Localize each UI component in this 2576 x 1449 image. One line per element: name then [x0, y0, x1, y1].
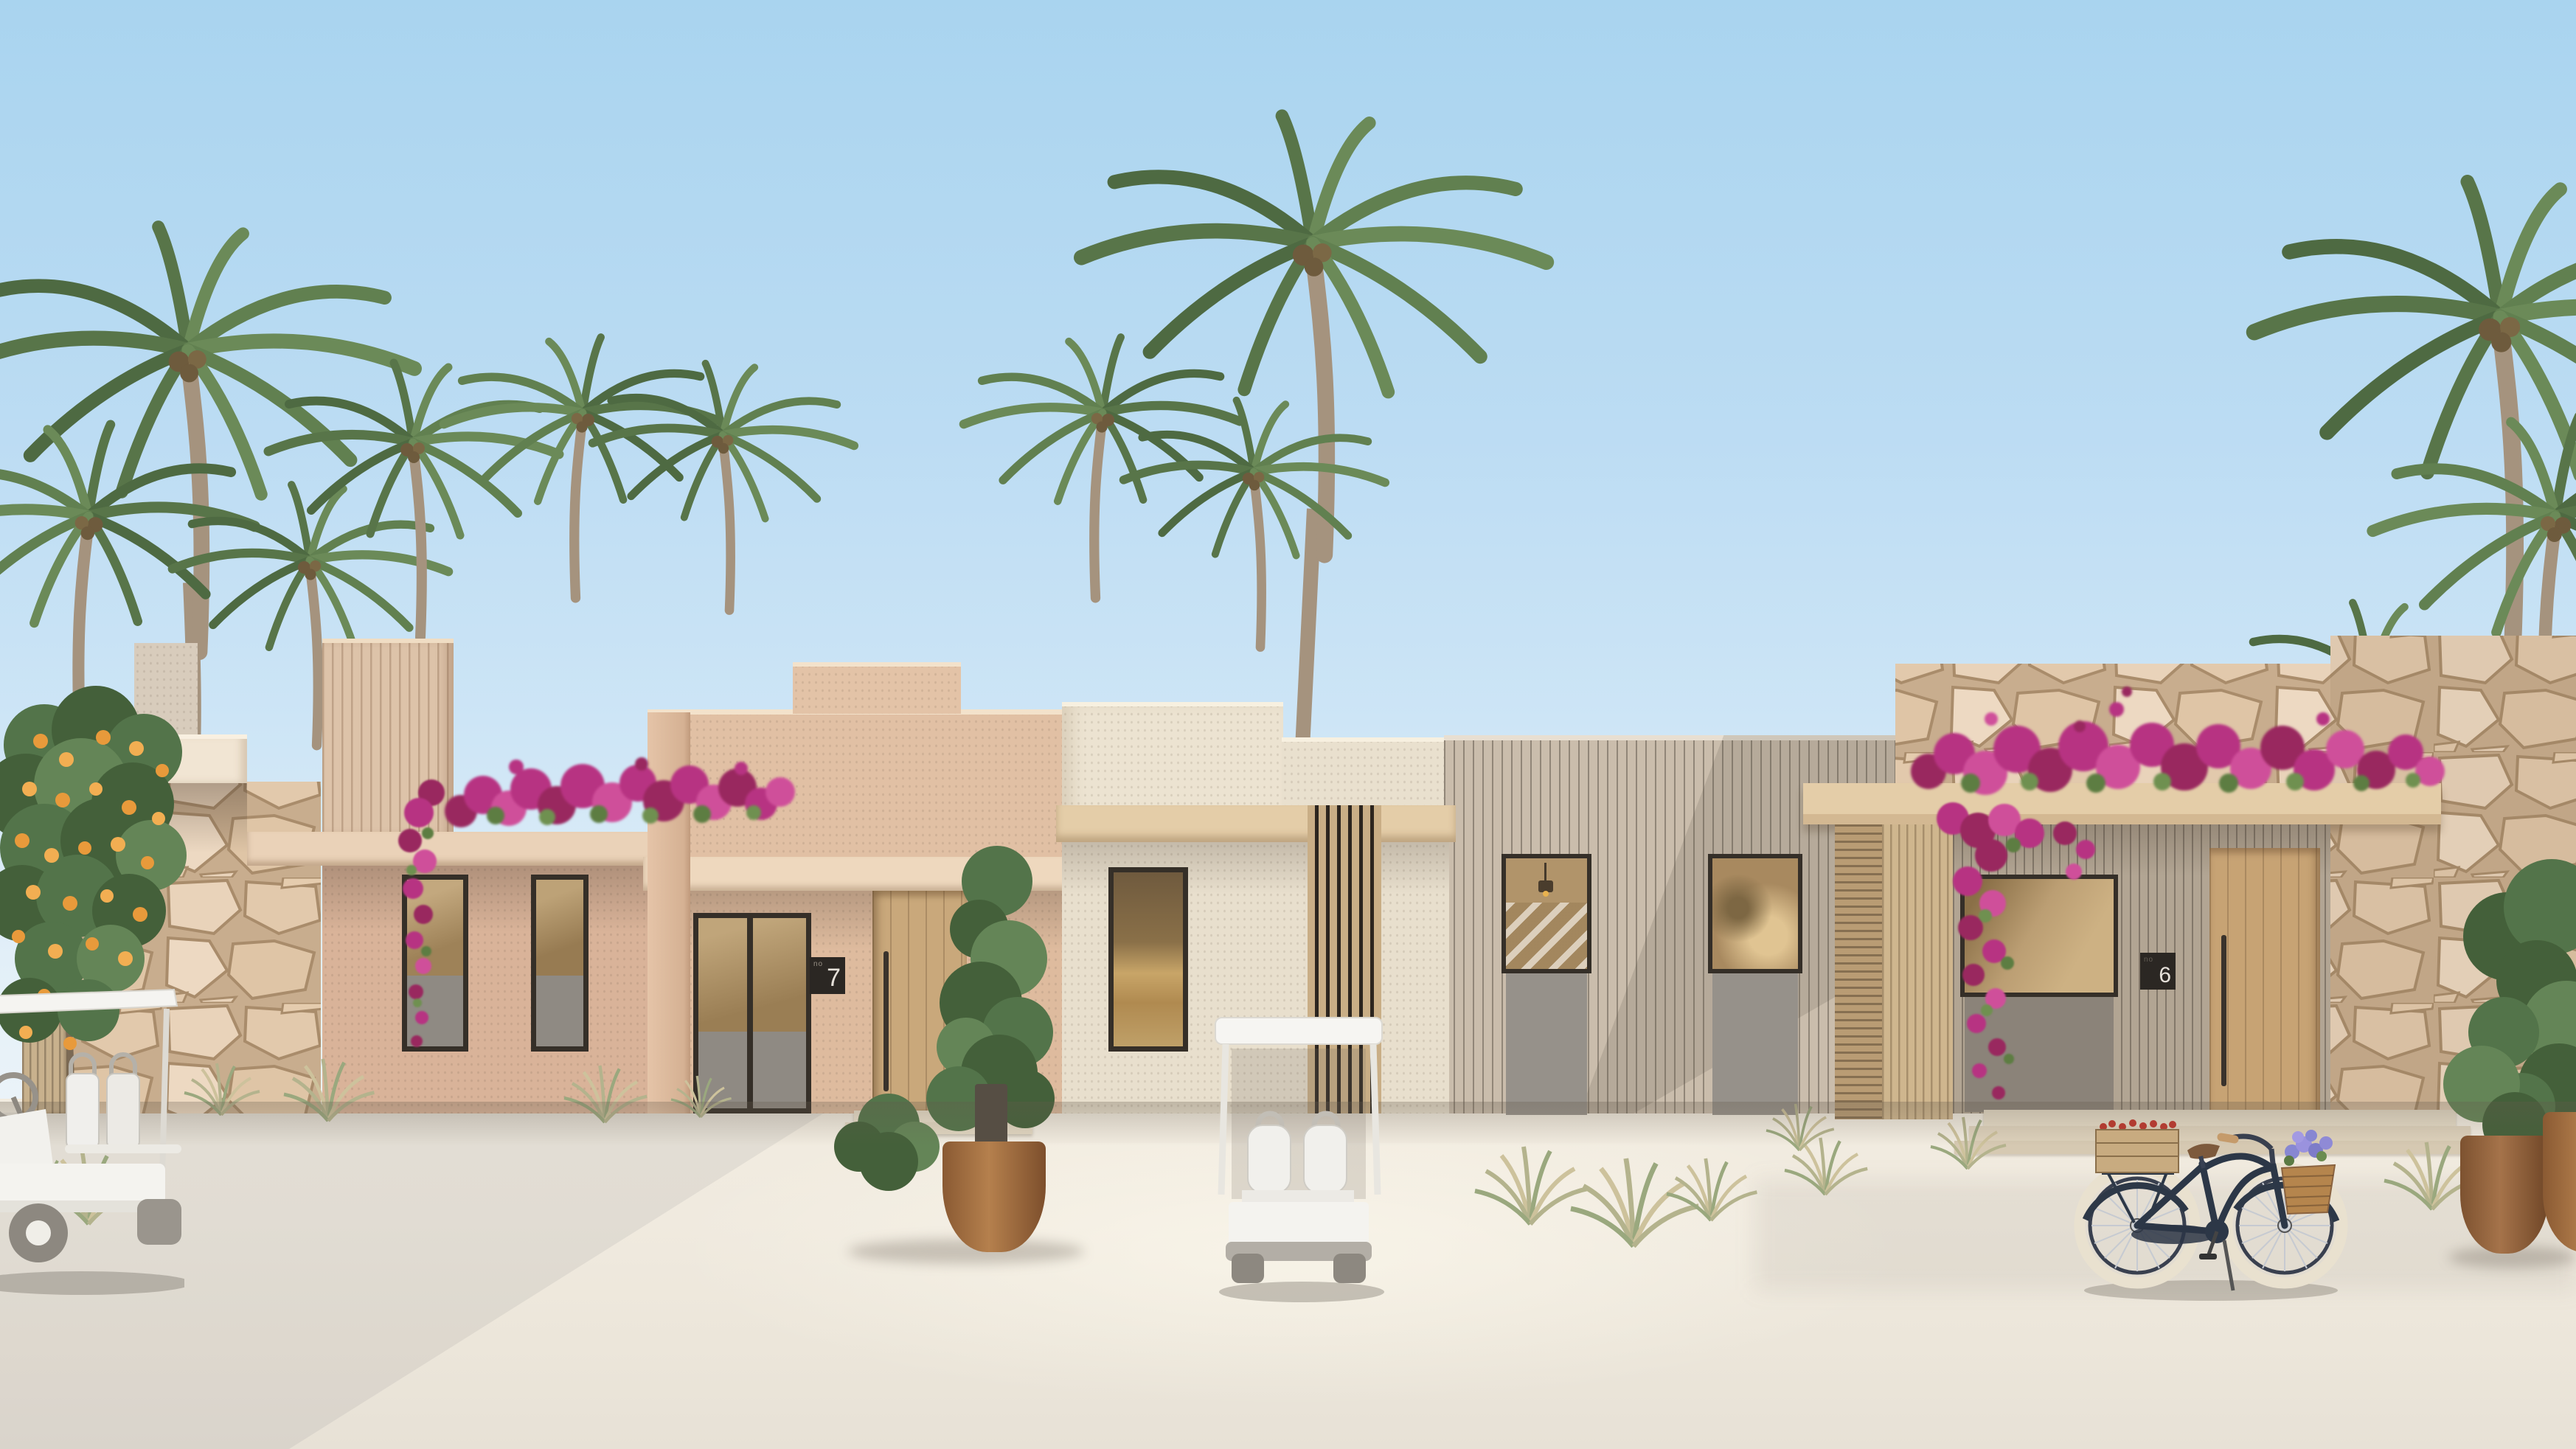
- foreground-objects: [0, 0, 2576, 1449]
- cart-wheel: [1232, 1254, 1264, 1283]
- terracotta-pot-large: [942, 1142, 1046, 1252]
- cart-wheel: [1333, 1254, 1366, 1283]
- cart-rear-fender: [137, 1199, 181, 1245]
- cart-roof: [0, 990, 177, 1015]
- terracotta-pot-right-1: [2460, 1136, 2549, 1254]
- scene-stage: no 7: [0, 0, 2576, 1449]
- cart-roof: [1215, 1018, 1382, 1044]
- golf-cart-center: [1209, 1016, 1394, 1311]
- terracotta-pot-right-2: [2543, 1112, 2576, 1252]
- bicycle-crate: [2096, 1119, 2179, 1172]
- bicycle-chainguard: [2131, 1225, 2217, 1244]
- golf-cart-left: [0, 987, 184, 1304]
- bicycle-saddle: [2187, 1144, 2220, 1159]
- bicycle-grip: [2221, 1137, 2235, 1139]
- bicycle: [2063, 997, 2358, 1307]
- bicycle-basket: [2282, 1130, 2335, 1214]
